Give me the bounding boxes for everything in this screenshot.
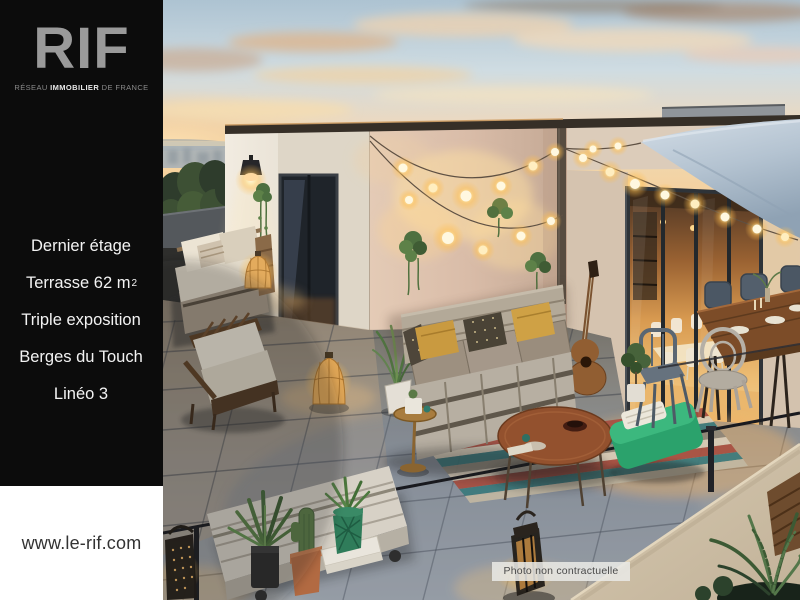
feature-item-exposure: Triple exposition — [0, 302, 163, 339]
real-estate-flyer: Photo non contractuelle RIF RÉSEAU IMMOB… — [0, 0, 800, 600]
feature-item-floor: Dernier étage — [0, 228, 163, 265]
railing-post — [708, 428, 714, 492]
tagline-left: RÉSEAU — [14, 83, 47, 92]
feature-item-location: Berges du Touch — [0, 339, 163, 376]
logo-text: RIF — [0, 20, 163, 78]
photo-disclaimer-badge: Photo non contractuelle — [492, 562, 630, 581]
tagline-bold: IMMOBILIER — [50, 83, 99, 92]
rif-logo: RIF RÉSEAU IMMOBILIER DE FRANCE — [0, 20, 163, 92]
website-link[interactable]: www.le-rif.com — [22, 533, 142, 554]
feature-item-transport: Linéo 3 — [0, 376, 163, 413]
terrace-illustration — [163, 0, 800, 600]
terrace-photo — [163, 0, 800, 600]
feature-item-terrace: Terrasse 62 m2 — [0, 265, 163, 302]
website-bar: www.le-rif.com — [0, 486, 163, 600]
logo-tagline: RÉSEAU IMMOBILIER DE FRANCE — [0, 83, 163, 92]
feature-list: Dernier étage Terrasse 62 m2 Triple expo… — [0, 228, 163, 413]
sidebar: RIF RÉSEAU IMMOBILIER DE FRANCE Dernier … — [0, 0, 163, 486]
tagline-right: DE FRANCE — [102, 83, 149, 92]
